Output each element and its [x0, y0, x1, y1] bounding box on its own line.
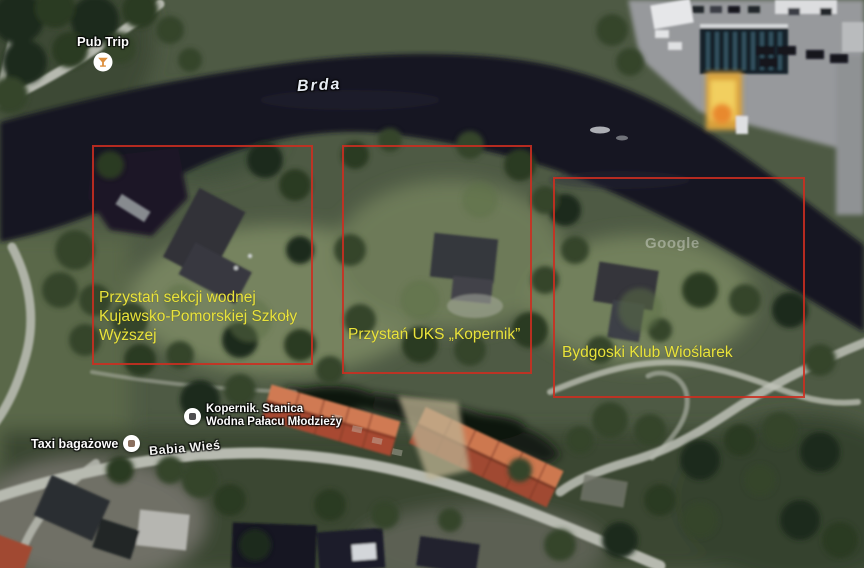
annotation-label-uks-kopernik: Przystań UKS „Kopernik” — [348, 325, 520, 344]
place-icon[interactable] — [123, 435, 140, 452]
annotation-label-przystan-szkoly: Przystań sekcji wodnej Kujawsko-Pomorski… — [99, 288, 317, 345]
map-viewport[interactable]: Przystań sekcji wodnej Kujawsko-Pomorski… — [0, 0, 864, 568]
poi-taxi-label: Taxi bagażowe — [31, 437, 118, 451]
poi-taxi-bagazowe[interactable]: Taxi bagażowe — [31, 435, 140, 452]
annotation-box-klub-wioslarek — [553, 177, 805, 398]
google-watermark: Google — [645, 235, 700, 252]
poi-pub-trip[interactable]: Pub Trip — [72, 34, 134, 72]
annotation-label-klub-wioslarek: Bydgoski Klub Wioślarek — [562, 343, 733, 362]
poi-kopernik-stanica[interactable]: Kopernik. Stanica Wodna Pałacu Młodzieży — [184, 403, 342, 429]
poi-pub-trip-label: Pub Trip — [72, 34, 134, 49]
map-overlay: Przystań sekcji wodnej Kujawsko-Pomorski… — [0, 0, 864, 568]
street-label-babia-wies: Babia Wieś — [149, 438, 222, 458]
river-label-brda: Brda — [297, 76, 342, 96]
poi-kopernik-label: Kopernik. Stanica Wodna Pałacu Młodzieży — [206, 403, 342, 429]
cocktail-icon[interactable] — [93, 52, 113, 72]
place-icon[interactable] — [184, 408, 201, 425]
